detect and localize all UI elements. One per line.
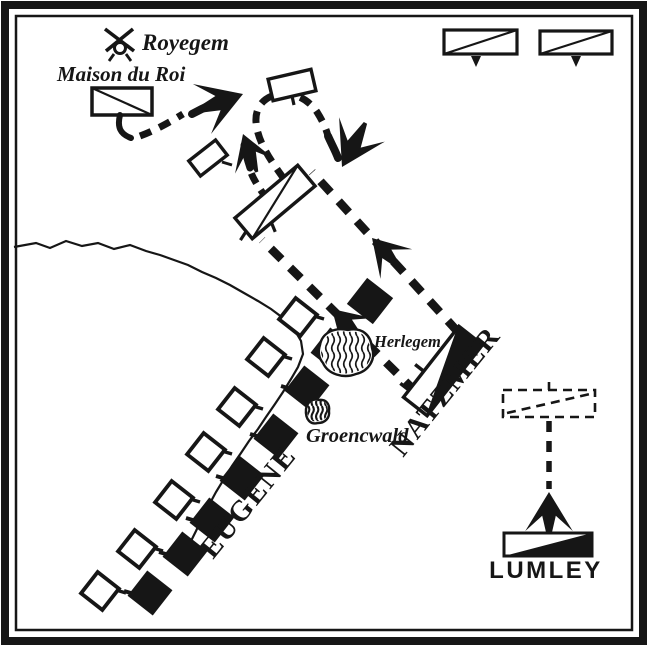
place-label-herlegem: Herlegem xyxy=(373,332,441,351)
place-label-maison-du-roi: Maison du Roi xyxy=(56,62,186,86)
lumley-cavalry-unit-icon xyxy=(504,533,592,556)
place-label-royegem: Royegem xyxy=(141,30,229,55)
map-canvas: Royegem Maison du Roi Herlegem Groencwal… xyxy=(0,0,648,646)
battle-map: Royegem Maison du Roi Herlegem Groencwal… xyxy=(0,0,648,646)
commander-label-lumley: LUMLEY xyxy=(489,557,603,584)
groencwald-wood-hatching xyxy=(307,401,328,422)
